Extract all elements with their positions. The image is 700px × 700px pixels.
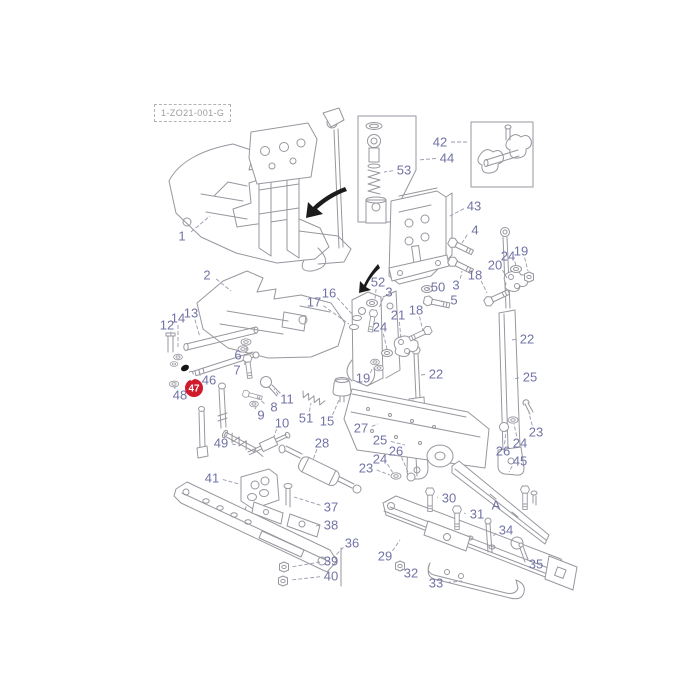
part-label-36[interactable]: 36 bbox=[345, 536, 359, 551]
part-label-27[interactable]: 27 bbox=[354, 421, 368, 436]
leader-line-44 bbox=[418, 159, 436, 161]
part-label-19[interactable]: 19 bbox=[514, 244, 528, 259]
part-label-29[interactable]: 29 bbox=[378, 549, 392, 564]
leader-line-41 bbox=[223, 480, 239, 485]
part-label-33[interactable]: 33 bbox=[429, 576, 443, 591]
leader-line-18 bbox=[420, 317, 424, 331]
spring-51-drawing bbox=[301, 391, 325, 406]
part-label-3[interactable]: 3 bbox=[385, 285, 392, 300]
part-label-2[interactable]: 2 bbox=[203, 268, 210, 283]
part-label-1[interactable]: 1 bbox=[178, 229, 185, 244]
part-label-52[interactable]: 52 bbox=[371, 275, 385, 290]
leader-line-31 bbox=[464, 513, 466, 514]
part-label-7[interactable]: 7 bbox=[233, 363, 240, 378]
leader-line-23 bbox=[377, 470, 390, 475]
part-label-41[interactable]: 41 bbox=[205, 471, 219, 486]
part-label-35[interactable]: 35 bbox=[529, 557, 543, 572]
part-label-49[interactable]: 49 bbox=[214, 436, 228, 451]
part-label-44[interactable]: 44 bbox=[440, 151, 454, 166]
bracket-43-drawing bbox=[389, 188, 452, 284]
frame-2-drawing bbox=[197, 271, 345, 358]
leader-line-24 bbox=[383, 334, 387, 349]
leader-line-19 bbox=[525, 258, 528, 271]
leader-line-16 bbox=[337, 298, 352, 314]
part-label-39[interactable]: 39 bbox=[324, 554, 338, 569]
leader-line-37 bbox=[294, 497, 320, 505]
leader-line-18 bbox=[481, 281, 487, 293]
part-label-24[interactable]: 24 bbox=[501, 249, 515, 264]
part-label-10[interactable]: 10 bbox=[275, 416, 289, 431]
part-label-16[interactable]: 16 bbox=[322, 286, 336, 301]
part-label-53[interactable]: 53 bbox=[397, 163, 411, 178]
part-label-13[interactable]: 13 bbox=[184, 306, 198, 321]
part-label-6[interactable]: 6 bbox=[234, 348, 241, 363]
diagram-code: 1-ZO21-001-G bbox=[161, 108, 224, 118]
part-label-26[interactable]: 26 bbox=[496, 444, 510, 459]
part-label-14[interactable]: 14 bbox=[171, 311, 185, 326]
hook-kit-box-drawing bbox=[471, 122, 533, 187]
part-label-18[interactable]: 18 bbox=[468, 268, 482, 283]
leader-line-49 bbox=[232, 444, 237, 445]
part-label-5[interactable]: 5 bbox=[450, 293, 457, 308]
leader-line-4 bbox=[462, 235, 467, 243]
leader-line-9 bbox=[255, 407, 256, 409]
leader-line-24 bbox=[388, 464, 394, 473]
main-lift-assembly-1-drawing bbox=[169, 108, 351, 271]
leader-line-28 bbox=[313, 449, 317, 460]
part-label-50[interactable]: 50 bbox=[431, 280, 445, 295]
exploded-parts-diagram: 1233456789101112131415161718181919202122… bbox=[0, 0, 700, 700]
part-label-38[interactable]: 38 bbox=[324, 518, 338, 533]
part-label-32[interactable]: 32 bbox=[404, 566, 418, 581]
part-label-25[interactable]: 25 bbox=[523, 370, 537, 385]
part-label-30[interactable]: 30 bbox=[442, 491, 456, 506]
part-label-24[interactable]: 24 bbox=[373, 320, 387, 335]
oring-47-drawing bbox=[180, 363, 190, 372]
part-label-46[interactable]: 46 bbox=[202, 373, 216, 388]
bumper-15-drawing bbox=[333, 378, 351, 403]
part-label-A[interactable]: A bbox=[492, 498, 501, 513]
part-label-17[interactable]: 17 bbox=[307, 295, 321, 310]
part-label-15[interactable]: 15 bbox=[320, 414, 334, 429]
part-label-23[interactable]: 23 bbox=[529, 425, 543, 440]
part-label-24[interactable]: 24 bbox=[513, 436, 527, 451]
part-label-51[interactable]: 51 bbox=[299, 411, 313, 426]
leader-line-43 bbox=[448, 209, 464, 217]
part-label-24[interactable]: 24 bbox=[373, 452, 387, 467]
diagram-code-box: 1-ZO21-001-G bbox=[154, 104, 231, 122]
leader-line-29 bbox=[393, 540, 401, 551]
leader-line-40 bbox=[291, 577, 320, 580]
part-label-45[interactable]: 45 bbox=[513, 454, 527, 469]
drawbar-frame-29-drawing bbox=[383, 486, 577, 599]
part-label-22[interactable]: 22 bbox=[520, 332, 534, 347]
leader-line-22 bbox=[421, 375, 425, 376]
part-label-19[interactable]: 19 bbox=[356, 371, 370, 386]
part-label-25[interactable]: 25 bbox=[373, 433, 387, 448]
part-label-18[interactable]: 18 bbox=[409, 303, 423, 318]
part-label-37[interactable]: 37 bbox=[324, 500, 338, 515]
part-label-11[interactable]: 11 bbox=[280, 392, 294, 407]
part-label-31[interactable]: 31 bbox=[470, 507, 484, 522]
part-label-9[interactable]: 9 bbox=[257, 408, 264, 423]
part-label-3[interactable]: 3 bbox=[452, 278, 459, 293]
part-label-40[interactable]: 40 bbox=[324, 569, 338, 584]
highlight-part-number: 47 bbox=[188, 384, 200, 395]
part-label-28[interactable]: 28 bbox=[315, 436, 329, 451]
part-label-23[interactable]: 23 bbox=[359, 461, 373, 476]
part-label-34[interactable]: 34 bbox=[499, 523, 513, 538]
part-label-8[interactable]: 8 bbox=[270, 400, 277, 415]
part-label-21[interactable]: 21 bbox=[391, 308, 405, 323]
part-label-43[interactable]: 43 bbox=[467, 199, 481, 214]
part-label-26[interactable]: 26 bbox=[389, 444, 403, 459]
part-label-48[interactable]: 48 bbox=[173, 388, 187, 403]
leader-line-53 bbox=[384, 171, 393, 172]
leader-line-13 bbox=[195, 320, 200, 337]
part-label-42[interactable]: 42 bbox=[433, 135, 447, 150]
leader-line-3 bbox=[460, 271, 462, 279]
part-label-4[interactable]: 4 bbox=[471, 223, 478, 238]
parts-diagram-page: 1233456789101112131415161718181919202122… bbox=[0, 0, 700, 700]
part-label-22[interactable]: 22 bbox=[429, 367, 443, 382]
